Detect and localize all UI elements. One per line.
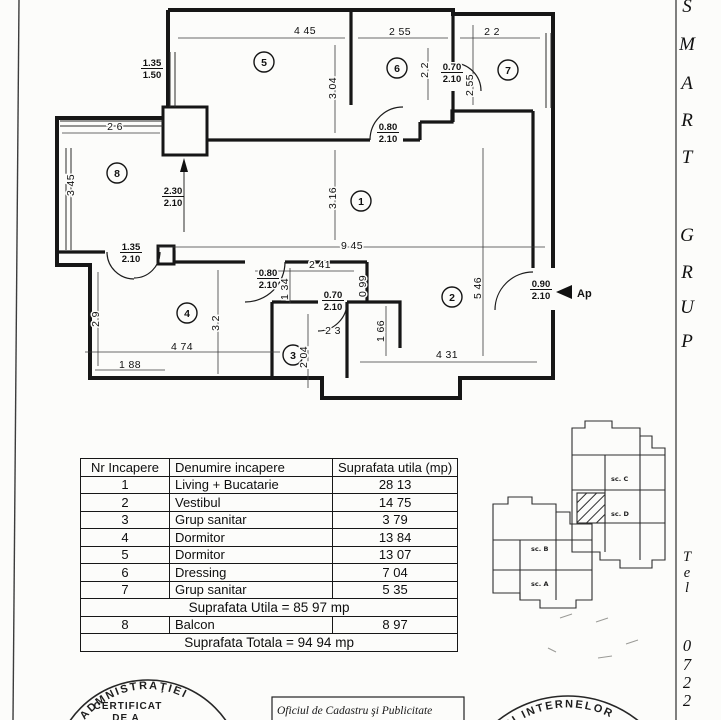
sidebar-letter: T: [682, 147, 694, 168]
table-cell: Grup sanitar: [170, 581, 333, 599]
door-size-width: 0.70: [324, 290, 343, 301]
area-table: Nr IncapereDenumire incapereSuprafata ut…: [80, 458, 458, 652]
door-size-width: 0.80: [379, 122, 398, 133]
site-plan-faint-marks: [548, 614, 638, 658]
outer-wall-bottom-left: [57, 10, 553, 398]
table-cell: Vestibul: [170, 494, 333, 512]
sidebar-letter: 2: [683, 691, 691, 710]
sidebar-letter: e: [684, 565, 691, 581]
dimension-label: 2 9: [90, 311, 102, 327]
table-cell: 7: [81, 581, 170, 599]
dimension-label: 2 2: [419, 62, 431, 78]
dimension-label: 2 04: [298, 346, 310, 368]
sidebar-letter: 0: [683, 636, 692, 655]
dimension-label: 4 31: [436, 349, 458, 361]
table-cell: 13 84: [333, 529, 458, 547]
door-size-height: 2.10: [324, 302, 343, 313]
dimension-label: 1 34: [279, 278, 291, 300]
door-size-width: 1.35: [143, 58, 162, 69]
table-cell: 7 04: [333, 564, 458, 582]
site-plan: sc. Csc. Dsc. Bsc. A: [493, 421, 665, 658]
sidebar-letter: P: [680, 331, 693, 352]
entrance-label: Ap: [577, 288, 592, 300]
sidebar-letter: T: [683, 549, 692, 565]
table-cell: Grup sanitar: [170, 511, 333, 529]
sidebar-letter: l: [685, 580, 689, 596]
entrance-marker: Ap: [556, 285, 592, 300]
stamp-left: UL ADMNISTRAŢIEI CERTIFICAT DE A: [53, 680, 243, 720]
table-cell: 6: [81, 564, 170, 582]
total-row-cell: Suprafata Totala = 94 94 mp: [81, 634, 458, 652]
room-number: 7: [505, 65, 511, 77]
table-row: 6Dressing7 04: [81, 564, 458, 582]
table-header-cell: Denumire incapere: [170, 459, 333, 477]
office-box-text: Oficiul de Cadastru şi Publicitate: [277, 705, 432, 717]
dimension-label: 5 46: [472, 277, 484, 299]
table-row: 2Vestibul14 75: [81, 494, 458, 512]
sidebar-vertical-text: SMARTGRUPTel0722: [678, 0, 696, 710]
table-row: 1Living + Bucatarie28 13: [81, 476, 458, 494]
dimension-label: 3 04: [327, 77, 339, 99]
stamp-right: AŢIEI ŞI INTERNELOR: [456, 696, 680, 720]
subtotal-row: Suprafata Utila = 85 97 mp: [81, 599, 458, 617]
staircase-label: sc. D: [611, 510, 629, 518]
dimension-label: 3 45: [65, 174, 77, 196]
left-page-edge-line: [13, 0, 19, 720]
room-number: 5: [261, 57, 267, 69]
door-size-width: 2.30: [164, 186, 183, 197]
dimension-label: 3 16: [327, 187, 339, 209]
door-size-height: 2.10: [122, 254, 141, 265]
table-cell: 13 07: [333, 546, 458, 564]
table-row: 4Dormitor13 84: [81, 529, 458, 547]
table-row: 8Balcon8 97: [81, 616, 458, 634]
sidebar-letter: R: [680, 110, 693, 131]
dimension-label: 3 2: [210, 315, 222, 331]
table-row: 5Dormitor13 07: [81, 546, 458, 564]
apartment-location-hatch: [577, 493, 605, 523]
sidebar-letter: G: [680, 225, 694, 246]
table-cell: 2: [81, 494, 170, 512]
dimension-label: 2 55: [464, 74, 476, 96]
office-box: Oficiul de Cadastru şi Publicitate: [272, 697, 464, 720]
door-size-width: 0.90: [532, 279, 551, 290]
sidebar-letter: U: [680, 297, 695, 318]
table-cell: 5 35: [333, 581, 458, 599]
table-cell: 4: [81, 529, 170, 547]
floor-plan: Ap 56781243 4 452 552 23 042 22 552 63 4…: [57, 10, 592, 398]
table-header-cell: Nr Incapere: [81, 459, 170, 477]
door-size-width: 0.80: [259, 268, 278, 279]
room-number: 1: [358, 196, 364, 208]
table-cell: 5: [81, 546, 170, 564]
cadastral-sheet: Ap 56781243 4 452 552 23 042 22 552 63 4…: [0, 0, 721, 720]
table-cell: Balcon: [170, 616, 333, 634]
table-cell: Dressing: [170, 564, 333, 582]
door-size-height: 2.10: [532, 291, 551, 302]
site-plan-labels: sc. Csc. Dsc. Bsc. A: [531, 475, 629, 588]
dimension-label: 1 88: [119, 359, 141, 371]
door-size-height: 2.10: [379, 134, 398, 145]
table-cell: 3: [81, 511, 170, 529]
staircase-label: sc. C: [611, 475, 628, 483]
table-row: 7Grup sanitar5 35: [81, 581, 458, 599]
door-size-width: 0.70: [443, 62, 462, 73]
sidebar-letter: 7: [683, 655, 692, 674]
door-size-height: 2.10: [443, 74, 462, 85]
dimension-label: 4 45: [294, 25, 316, 37]
dimension-label: 2 2: [484, 26, 500, 38]
sidebar-letter: R: [680, 262, 693, 283]
room-number: 3: [290, 350, 296, 362]
sidebar-letter: M: [678, 34, 696, 55]
sidebar-letter: 2: [683, 673, 691, 692]
entrance-arrow-icon: [556, 285, 572, 299]
table-cell: 28 13: [333, 476, 458, 494]
subtotal-row-cell: Suprafata Utila = 85 97 mp: [81, 599, 458, 617]
door-size-height: 2.10: [259, 280, 278, 291]
area-table-header: Nr IncapereDenumire incapereSuprafata ut…: [81, 459, 458, 477]
total-row: Suprafata Totala = 94 94 mp: [81, 634, 458, 652]
door-size-width: 1.35: [122, 242, 141, 253]
stamp-left-line1: CERTIFICAT: [94, 701, 163, 712]
table-cell: 1: [81, 476, 170, 494]
dimension-labels: 4 452 552 23 042 22 552 63 453 169 452 4…: [65, 25, 500, 371]
table-cell: Dormitor: [170, 529, 333, 547]
sidebar-letter: S: [682, 0, 692, 17]
room-number: 4: [184, 308, 190, 320]
table-cell: 3 79: [333, 511, 458, 529]
room-number: 8: [114, 168, 120, 180]
room-number: 2: [449, 292, 455, 304]
table-cell: 8 97: [333, 616, 458, 634]
table-cell: Living + Bucatarie: [170, 476, 333, 494]
dimension-label: 2 41: [309, 259, 331, 271]
table-header-cell: Suprafata utila (mp): [333, 459, 458, 477]
area-table-body: 1Living + Bucatarie28 132Vestibul14 753G…: [81, 476, 458, 651]
svg-text:AŢIEI ŞI INTERNELOR: AŢIEI ŞI INTERNELOR: [473, 698, 615, 720]
dimension-label: 2 6: [107, 121, 123, 133]
table-row: 3Grup sanitar3 79: [81, 511, 458, 529]
stamp-right-arc-text: AŢIEI ŞI INTERNELOR: [473, 698, 615, 720]
staircase-label: sc. B: [531, 545, 548, 553]
dimension-label: 2 3: [325, 325, 341, 337]
staircase-label: sc. A: [531, 580, 549, 588]
table-cell: 8: [81, 616, 170, 634]
dimension-label: 0 99: [357, 275, 369, 297]
room-number: 6: [394, 63, 400, 75]
dimension-label: 1 66: [375, 320, 387, 342]
wall-pillar: [163, 107, 207, 155]
table-cell: Dormitor: [170, 546, 333, 564]
door-size-height: 1.50: [143, 70, 162, 81]
door-size-height: 2.10: [164, 198, 183, 209]
sidebar-letter: A: [679, 73, 693, 94]
interior-walls: [57, 10, 533, 378]
table-cell: 14 75: [333, 494, 458, 512]
dimension-label: 9 45: [341, 240, 363, 252]
dimension-label: 2 55: [389, 26, 411, 38]
dimension-label: 4 74: [171, 341, 193, 353]
stamp-left-line2: DE A: [112, 713, 140, 720]
